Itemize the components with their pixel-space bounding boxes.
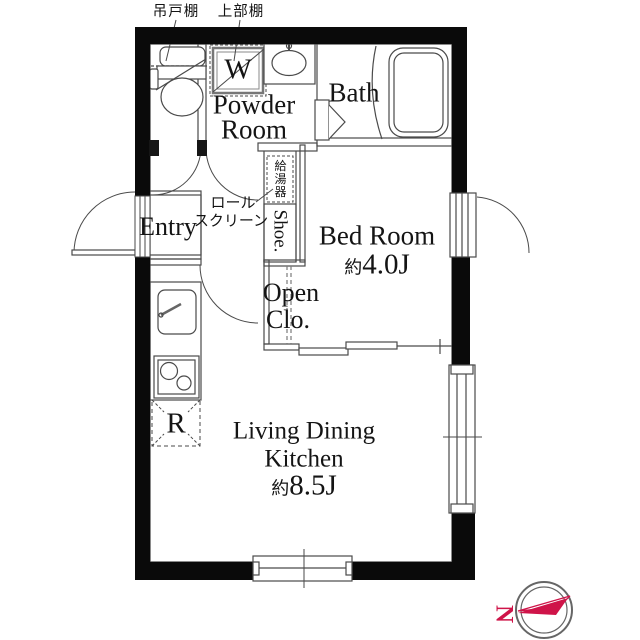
bathtub-icon bbox=[372, 46, 448, 139]
kitchen-sink-icon bbox=[158, 290, 196, 334]
bath-label: Bath bbox=[329, 80, 380, 107]
upper-shelf-label: 上部棚 bbox=[218, 5, 265, 20]
floor-plan-drawing bbox=[0, 0, 640, 640]
stove-icon bbox=[154, 356, 199, 398]
refrigerator-label: R bbox=[166, 410, 185, 439]
hanging-cupboard-label: 吊戸棚 bbox=[153, 5, 200, 20]
living-window bbox=[443, 365, 482, 513]
wall-posts bbox=[149, 140, 207, 156]
bedroom-door-arc bbox=[477, 197, 529, 253]
bed-room-size-prefix: 約 bbox=[344, 258, 362, 278]
powder-room-label-line2: Room bbox=[221, 117, 287, 144]
powder-door-arc bbox=[206, 148, 258, 200]
toilet-door-arc bbox=[153, 147, 201, 195]
water-heater-label: 給湯器 bbox=[274, 160, 286, 199]
ldk-size-prefix: 約 bbox=[271, 479, 289, 499]
ldk-label-line2: Kitchen bbox=[264, 447, 343, 472]
washing-machine-label: W bbox=[224, 56, 251, 85]
ldk-size: 約8.5J bbox=[271, 472, 337, 501]
bedroom-window-door bbox=[450, 193, 476, 257]
bottom-window bbox=[253, 549, 352, 588]
compass-north-letter: N bbox=[492, 605, 517, 623]
bed-room-label: Bed Room bbox=[319, 223, 435, 250]
open-closet-label-line2: Clo. bbox=[266, 307, 310, 333]
open-closet-label-line1: Open bbox=[263, 280, 319, 306]
roll-screen-label-line1: ロール bbox=[210, 197, 255, 212]
sliding-door bbox=[299, 339, 452, 355]
bed-room-size-value: 4.0J bbox=[362, 249, 410, 281]
front-door-arc bbox=[74, 192, 135, 253]
front-door-leaf bbox=[72, 250, 135, 255]
sink-icon bbox=[264, 42, 315, 84]
compass-icon bbox=[516, 582, 572, 638]
ldk-door-arc bbox=[200, 265, 258, 323]
ldk-label-line1: Living Dining bbox=[233, 419, 375, 444]
ldk-size-value: 8.5J bbox=[289, 470, 337, 502]
roll-screen-label-line2: スクリーン bbox=[194, 215, 268, 230]
floor-plan: 吊戸棚 上部棚 W Powder Room Bath Entry ロール スクリ… bbox=[0, 0, 640, 640]
shoe-box-label: Shoe. bbox=[271, 210, 290, 253]
bed-room-size: 約4.0J bbox=[344, 251, 410, 280]
entry-label: Entry bbox=[139, 214, 197, 240]
